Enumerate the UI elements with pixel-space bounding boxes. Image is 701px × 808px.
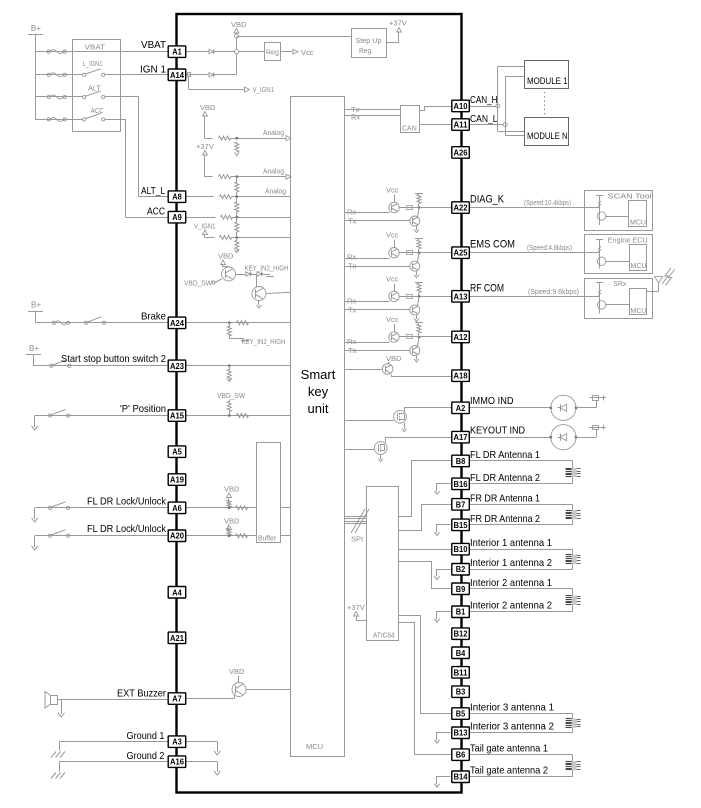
svg-text:MCU: MCU	[631, 308, 647, 315]
svg-text:VBD_SW: VBD_SW	[184, 279, 213, 288]
svg-text:Interior 3 antenna 2: Interior 3 antenna 2	[470, 721, 554, 733]
svg-text:V_IGN1: V_IGN1	[194, 222, 216, 231]
svg-text:Step Up: Step Up	[356, 38, 382, 45]
svg-text:Ground 2: Ground 2	[127, 750, 165, 762]
svg-text:Rx: Rx	[347, 296, 356, 305]
svg-text:A17: A17	[454, 432, 468, 442]
svg-text:B14: B14	[454, 772, 468, 782]
svg-text:FR DR Antenna 2: FR DR Antenna 2	[470, 513, 540, 525]
svg-text:Rx: Rx	[347, 253, 356, 262]
svg-text:VBAT: VBAT	[85, 43, 106, 52]
svg-text:unit: unit	[308, 401, 329, 416]
svg-text:Reg.: Reg.	[359, 48, 373, 55]
svg-text:FL DR Antenna 2: FL DR Antenna 2	[470, 472, 540, 484]
svg-text:Vcc: Vcc	[386, 274, 399, 283]
svg-text:A15: A15	[170, 411, 184, 421]
svg-text:Interior 1 antenna 1: Interior 1 antenna 1	[470, 537, 552, 549]
svg-text:Interior 2 antenna 2: Interior 2 antenna 2	[470, 600, 552, 612]
svg-text:A7: A7	[172, 694, 182, 704]
svg-text:FR DR Antenna 1: FR DR Antenna 1	[470, 492, 540, 504]
svg-text:B+: B+	[29, 344, 39, 353]
svg-text:'P' Position: 'P' Position	[120, 403, 166, 415]
svg-text:Rx: Rx	[347, 337, 356, 346]
svg-text:A9: A9	[172, 212, 182, 222]
svg-text:A3: A3	[172, 737, 182, 747]
svg-text:A6: A6	[172, 503, 182, 513]
svg-text:Brake: Brake	[141, 311, 166, 323]
svg-text:Vcc: Vcc	[301, 48, 314, 57]
svg-text:Smart: Smart	[301, 367, 336, 382]
svg-text:B3: B3	[456, 687, 466, 697]
svg-text:B2: B2	[456, 564, 466, 574]
svg-text:Interior 3 antenna 1: Interior 3 antenna 1	[470, 702, 554, 714]
svg-text:CAN_L: CAN_L	[470, 113, 498, 125]
svg-text:VBD: VBD	[200, 103, 216, 112]
svg-text:A18: A18	[454, 371, 468, 381]
svg-text:B10: B10	[454, 544, 468, 554]
svg-text:A4: A4	[172, 587, 182, 597]
svg-text:+37V: +37V	[347, 603, 365, 612]
svg-text:VBD: VBD	[229, 667, 245, 676]
svg-text:IMMO IND: IMMO IND	[470, 395, 514, 407]
svg-text:A20: A20	[170, 531, 184, 541]
svg-text:key: key	[308, 384, 329, 399]
svg-text:FL DR Lock/Unlock: FL DR Lock/Unlock	[87, 523, 167, 535]
svg-text:VBD: VBD	[231, 20, 247, 29]
svg-text:DIAG_K: DIAG_K	[470, 194, 505, 206]
svg-text:A23: A23	[170, 361, 184, 371]
svg-text:KEY_IN2_HIGH: KEY_IN2_HIGH	[242, 337, 286, 346]
svg-text:L_IGN1: L_IGN1	[83, 59, 103, 68]
svg-text:Tail gate antenna 2: Tail gate antenna 2	[470, 765, 548, 777]
svg-text:VBAT: VBAT	[141, 39, 167, 51]
svg-text:SRx: SRx	[613, 281, 626, 288]
svg-text:ACC: ACC	[147, 206, 165, 218]
svg-text:KEY_IN2_HIGH: KEY_IN2_HIGH	[245, 264, 289, 273]
svg-text:Analog: Analog	[263, 167, 284, 176]
svg-text:IGN 1: IGN 1	[140, 64, 166, 76]
svg-text:VBD: VBD	[386, 354, 402, 363]
svg-text:ALT_L: ALT_L	[141, 185, 165, 197]
svg-text:Ground 1: Ground 1	[127, 730, 165, 742]
svg-text:A26: A26	[454, 147, 468, 157]
svg-text:B16: B16	[454, 479, 468, 489]
svg-text:Interior 2 antenna 1: Interior 2 antenna 1	[470, 577, 552, 589]
svg-text:+37V: +37V	[196, 142, 214, 151]
svg-text:B4: B4	[456, 648, 466, 658]
svg-text:A16: A16	[170, 757, 184, 767]
svg-text:A25: A25	[454, 248, 468, 258]
svg-text:Interior 1 antenna 2: Interior 1 antenna 2	[470, 557, 552, 569]
svg-text:SCAN Tool: SCAN Tool	[608, 194, 653, 201]
svg-text:VBD: VBD	[218, 252, 234, 261]
svg-text:Vcc: Vcc	[386, 315, 399, 324]
svg-text:V_IGN1: V_IGN1	[253, 85, 275, 94]
svg-text:B8: B8	[456, 456, 466, 466]
svg-text:A21: A21	[170, 633, 184, 643]
svg-text:Analog: Analog	[263, 128, 284, 137]
svg-text:EMS COM: EMS COM	[470, 239, 515, 251]
svg-text:FL DR Lock/Unlock: FL DR Lock/Unlock	[87, 495, 167, 507]
svg-text:B5: B5	[456, 709, 466, 719]
svg-text:Tail gate antenna 1: Tail gate antenna 1	[470, 743, 548, 755]
svg-text:A10: A10	[454, 101, 468, 111]
svg-text:(Speed:10.4kbps): (Speed:10.4kbps)	[524, 200, 571, 207]
svg-text:VBD: VBD	[224, 517, 240, 526]
svg-text:MODULE 1: MODULE 1	[527, 76, 568, 87]
svg-text:KEYOUT IND: KEYOUT IND	[470, 425, 525, 437]
svg-text:B13: B13	[454, 728, 468, 738]
svg-text:CAN: CAN	[402, 126, 417, 133]
svg-text:FL DR Antenna 1: FL DR Antenna 1	[470, 449, 540, 461]
svg-text:A8: A8	[172, 192, 182, 202]
svg-text:B9: B9	[456, 584, 466, 594]
svg-text:RF COM: RF COM	[470, 283, 504, 295]
svg-text:A24: A24	[170, 318, 184, 328]
svg-text:A19: A19	[170, 475, 184, 485]
svg-text:A13: A13	[454, 291, 468, 301]
svg-text:Start stop button switch 2: Start stop button switch 2	[61, 353, 166, 365]
svg-text:VBD_SW: VBD_SW	[217, 391, 246, 400]
svg-text:A1: A1	[172, 47, 182, 57]
svg-text:MCU: MCU	[306, 742, 323, 751]
svg-text:A2: A2	[456, 403, 466, 413]
svg-text:Buffer: Buffer	[258, 536, 277, 543]
svg-text:Vcc: Vcc	[386, 186, 399, 195]
svg-text:ATIC84: ATIC84	[373, 633, 395, 640]
svg-text:B6: B6	[456, 750, 466, 760]
svg-text:MODULE N: MODULE N	[527, 131, 568, 142]
svg-text:B+: B+	[31, 24, 41, 33]
svg-text:MCU: MCU	[631, 263, 647, 270]
svg-text:(Speed:9.6kbps): (Speed:9.6kbps)	[528, 289, 579, 296]
svg-text:A11: A11	[454, 120, 468, 130]
svg-text:EXT Buzzer: EXT Buzzer	[117, 687, 166, 699]
svg-text:Reg: Reg	[266, 50, 279, 57]
svg-text:(Speed:4.8kbps): (Speed:4.8kbps)	[527, 245, 572, 252]
svg-text:Rx: Rx	[351, 113, 360, 122]
svg-text:A5: A5	[172, 447, 182, 457]
svg-text:A12: A12	[454, 332, 468, 342]
svg-text:B15: B15	[454, 520, 468, 530]
svg-text:MCU: MCU	[630, 220, 646, 227]
svg-text:B12: B12	[454, 629, 468, 639]
svg-text:Vcc: Vcc	[386, 231, 399, 240]
svg-text:Engine ECU: Engine ECU	[608, 238, 648, 245]
svg-text:B11: B11	[454, 667, 468, 677]
svg-text:A22: A22	[454, 203, 468, 213]
svg-text:ACC: ACC	[91, 106, 104, 115]
svg-text:B+: B+	[31, 301, 41, 310]
svg-text:CAN_H: CAN_H	[470, 94, 498, 106]
svg-text:A14: A14	[170, 70, 184, 80]
svg-text:VBD: VBD	[224, 485, 240, 494]
svg-text:B7: B7	[456, 499, 466, 509]
svg-text:B1: B1	[456, 607, 466, 617]
svg-text:SPI: SPI	[351, 535, 363, 544]
svg-text:+37V: +37V	[389, 19, 407, 28]
svg-text:Analog: Analog	[265, 187, 286, 196]
